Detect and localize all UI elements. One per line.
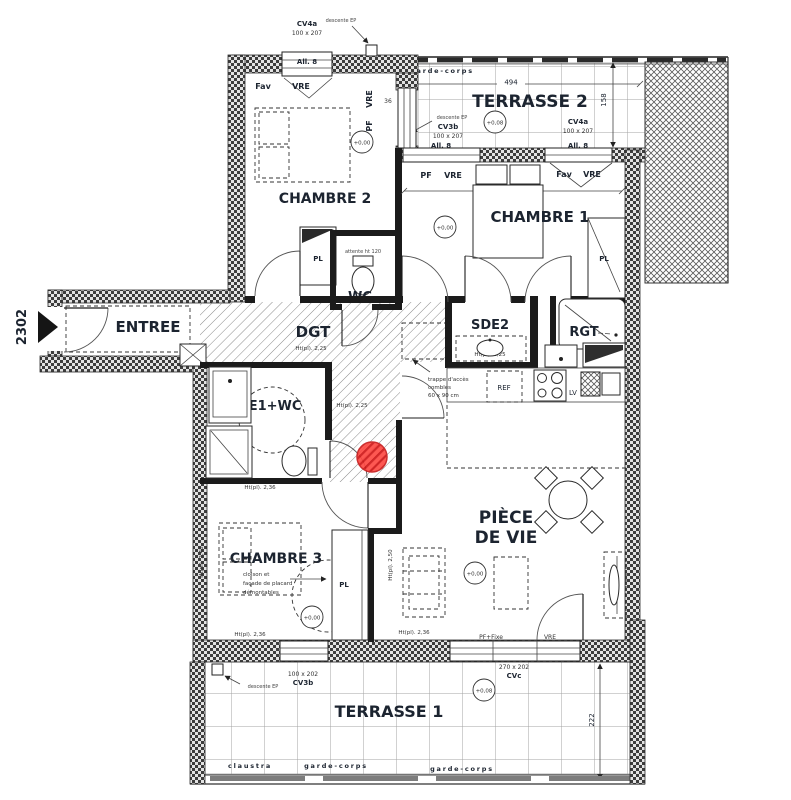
garde-corps-label-b2: garde-corps bbox=[430, 765, 494, 773]
svg-text:36: 36 bbox=[384, 98, 392, 105]
svg-text:PF: PF bbox=[420, 171, 431, 180]
sofa bbox=[403, 548, 445, 617]
svg-text:100 x 207: 100 x 207 bbox=[433, 133, 463, 140]
chambre1-room: PF VRE Fav VRE 458 CHAMBRE 1 +0,00 PL bbox=[401, 148, 625, 302]
rgt-door-from-c1 bbox=[525, 256, 571, 302]
svg-text:CV4a: CV4a bbox=[297, 20, 317, 28]
dining-table bbox=[535, 467, 604, 534]
descente-ep-top: descente EP bbox=[326, 18, 377, 56]
svg-text:PL: PL bbox=[339, 581, 349, 589]
svg-text:trappe d'accès: trappe d'accès bbox=[428, 376, 469, 383]
garde-corps-label-b1: garde-corps bbox=[304, 762, 368, 770]
svg-text:+0,00: +0,00 bbox=[467, 572, 484, 578]
chambre1-elevation: +0,00 bbox=[434, 216, 456, 238]
svg-text:PL: PL bbox=[599, 255, 609, 263]
svg-text:façade de placard: façade de placard bbox=[243, 581, 292, 587]
chambre3-note: cloison et façade de placard démontables bbox=[243, 572, 326, 596]
svg-text:+0,08: +0,08 bbox=[487, 121, 504, 127]
unit-number: 2302 bbox=[15, 309, 30, 345]
sde1-height: Ht(pl). 2,25 bbox=[336, 403, 368, 409]
svg-text:descente EP: descente EP bbox=[437, 115, 468, 121]
pdv-height: Ht(pl). 2,36 bbox=[398, 630, 430, 636]
svg-text:All. 8: All. 8 bbox=[297, 58, 317, 66]
sde2-room: SDE2 Ht(pl). 2,25 bbox=[456, 318, 526, 361]
svg-text:494: 494 bbox=[504, 79, 518, 87]
claustra-label: claustra bbox=[228, 762, 272, 770]
window-c1-right: Fav VRE bbox=[545, 148, 612, 187]
chambre3-door bbox=[322, 482, 368, 528]
sde2-door-from-c1 bbox=[465, 256, 511, 302]
chambre1-label: CHAMBRE 1 bbox=[491, 208, 590, 226]
svg-text:60 x 90 cm: 60 x 90 cm bbox=[428, 393, 459, 399]
svg-text:descente EP: descente EP bbox=[248, 684, 279, 690]
svg-text:Fav: Fav bbox=[255, 82, 271, 91]
pdv-label-1: PIÈCE bbox=[479, 506, 534, 528]
rgt-leader-dot bbox=[614, 333, 617, 336]
chambre3-height-top: Ht(pl). 2,36 bbox=[244, 485, 276, 491]
chambre3-height-right: Ht(pl). 2,50 bbox=[388, 549, 394, 581]
entry-door-arc bbox=[64, 308, 108, 352]
terrasse-1: TERRASSE 1 +0,08 descente EP All. 8 100 … bbox=[190, 647, 645, 784]
chambre3-height-left: Ht(pl). 2,48 bbox=[199, 546, 205, 578]
svg-text:VRE: VRE bbox=[583, 170, 601, 179]
entree-label: ENTREE bbox=[115, 318, 180, 336]
toilet-sde1 bbox=[282, 446, 317, 476]
terrasse2-label: TERRASSE 2 bbox=[472, 92, 588, 112]
svg-text:100 x 207: 100 x 207 bbox=[292, 30, 322, 37]
svg-text:descente EP: descente EP bbox=[326, 18, 357, 24]
rgt-label: RGT bbox=[569, 325, 598, 340]
pdv-label-2: DE VIE bbox=[475, 528, 538, 548]
svg-text:+0,00: +0,00 bbox=[304, 616, 321, 622]
vre-label-pdv: VRE bbox=[544, 634, 556, 641]
svg-text:Fav: Fav bbox=[556, 170, 572, 179]
cv4a-label-terr2: CV4a bbox=[568, 118, 588, 126]
placard-chambre3: PL bbox=[332, 530, 368, 640]
chambre2-door bbox=[255, 251, 300, 296]
chambre2-label: CHAMBRE 2 bbox=[279, 191, 371, 207]
svg-text:158: 158 bbox=[600, 93, 608, 106]
terrasse2-corner-block bbox=[645, 62, 728, 283]
fridge: REF bbox=[487, 371, 522, 402]
chambre3-room: CHAMBRE 3 cloison et façade de placard d… bbox=[199, 482, 394, 640]
vanity-sde1 bbox=[209, 367, 251, 423]
svg-text:REF: REF bbox=[497, 384, 510, 392]
pf-fixe-label: PF+Fixe bbox=[479, 634, 503, 641]
stove bbox=[534, 370, 566, 401]
window-c1-left: PF VRE bbox=[403, 148, 480, 180]
red-click-marker bbox=[357, 442, 387, 472]
chambre2-elevation: +0,00 bbox=[351, 131, 373, 153]
svg-text:VRE: VRE bbox=[444, 171, 462, 180]
coffee-table bbox=[494, 557, 528, 609]
sink-lv: LV bbox=[569, 372, 620, 397]
terrasse1-elevation: +0,08 bbox=[473, 679, 495, 701]
wc-note: attente ht 120 bbox=[345, 249, 381, 255]
svg-text:cloison et: cloison et bbox=[243, 572, 270, 578]
pdv-elevation: +0,00 bbox=[464, 562, 486, 584]
placard-chambre1: PL bbox=[588, 218, 625, 298]
garde-corps-label-top: garde-corps bbox=[410, 67, 474, 75]
chambre3-height-bottom: Ht(pl). 2,36 bbox=[234, 632, 266, 638]
bed-chambre2 bbox=[255, 108, 350, 182]
win-bl-code: CV3b bbox=[293, 679, 313, 687]
shower-sde1 bbox=[206, 426, 252, 478]
svg-text:PL: PL bbox=[313, 255, 323, 263]
win-br-code: CVc bbox=[507, 672, 522, 680]
piece-de-vie-room: PIÈCE DE VIE +0,00 Ht(pl). 2,36 PF+Fixe … bbox=[398, 467, 626, 641]
win-br-size: 270 x 202 bbox=[499, 664, 529, 671]
terrasse2-elevation: +0,08 bbox=[484, 111, 506, 133]
dgt-height: Ht(pl). 2,25 bbox=[295, 346, 327, 352]
svg-text:VRE: VRE bbox=[365, 90, 374, 108]
sde2-label: SDE2 bbox=[471, 318, 509, 333]
svg-text:CV3b: CV3b bbox=[438, 123, 458, 131]
floor-plan-page: garde-corps TERRASSE 2 +0,08 494 158 des… bbox=[0, 0, 791, 800]
svg-text:+0,00: +0,00 bbox=[437, 226, 454, 232]
dgt-label: DGT bbox=[296, 323, 331, 341]
win-bl-size: 100 x 202 bbox=[288, 671, 318, 678]
svg-text:PF: PF bbox=[365, 120, 374, 131]
rgt-room: RGT bbox=[559, 299, 625, 349]
chambre1-door bbox=[402, 256, 448, 302]
floor-plan-2302: garde-corps TERRASSE 2 +0,08 494 158 des… bbox=[0, 0, 791, 800]
cv4a-size-terr2: 100 x 207 bbox=[563, 128, 593, 135]
chambre3-elevation: +0,00 bbox=[301, 606, 323, 628]
svg-text:+0,08: +0,08 bbox=[476, 689, 493, 695]
svg-text:VRE: VRE bbox=[292, 82, 310, 91]
svg-text:222: 222 bbox=[588, 713, 596, 726]
tv-console bbox=[604, 552, 626, 618]
svg-text:+0,00: +0,00 bbox=[354, 141, 371, 147]
kitchen-zone-boundary bbox=[447, 405, 626, 468]
terrasse1-label: TERRASSE 1 bbox=[335, 702, 444, 721]
svg-text:LV: LV bbox=[569, 389, 577, 397]
